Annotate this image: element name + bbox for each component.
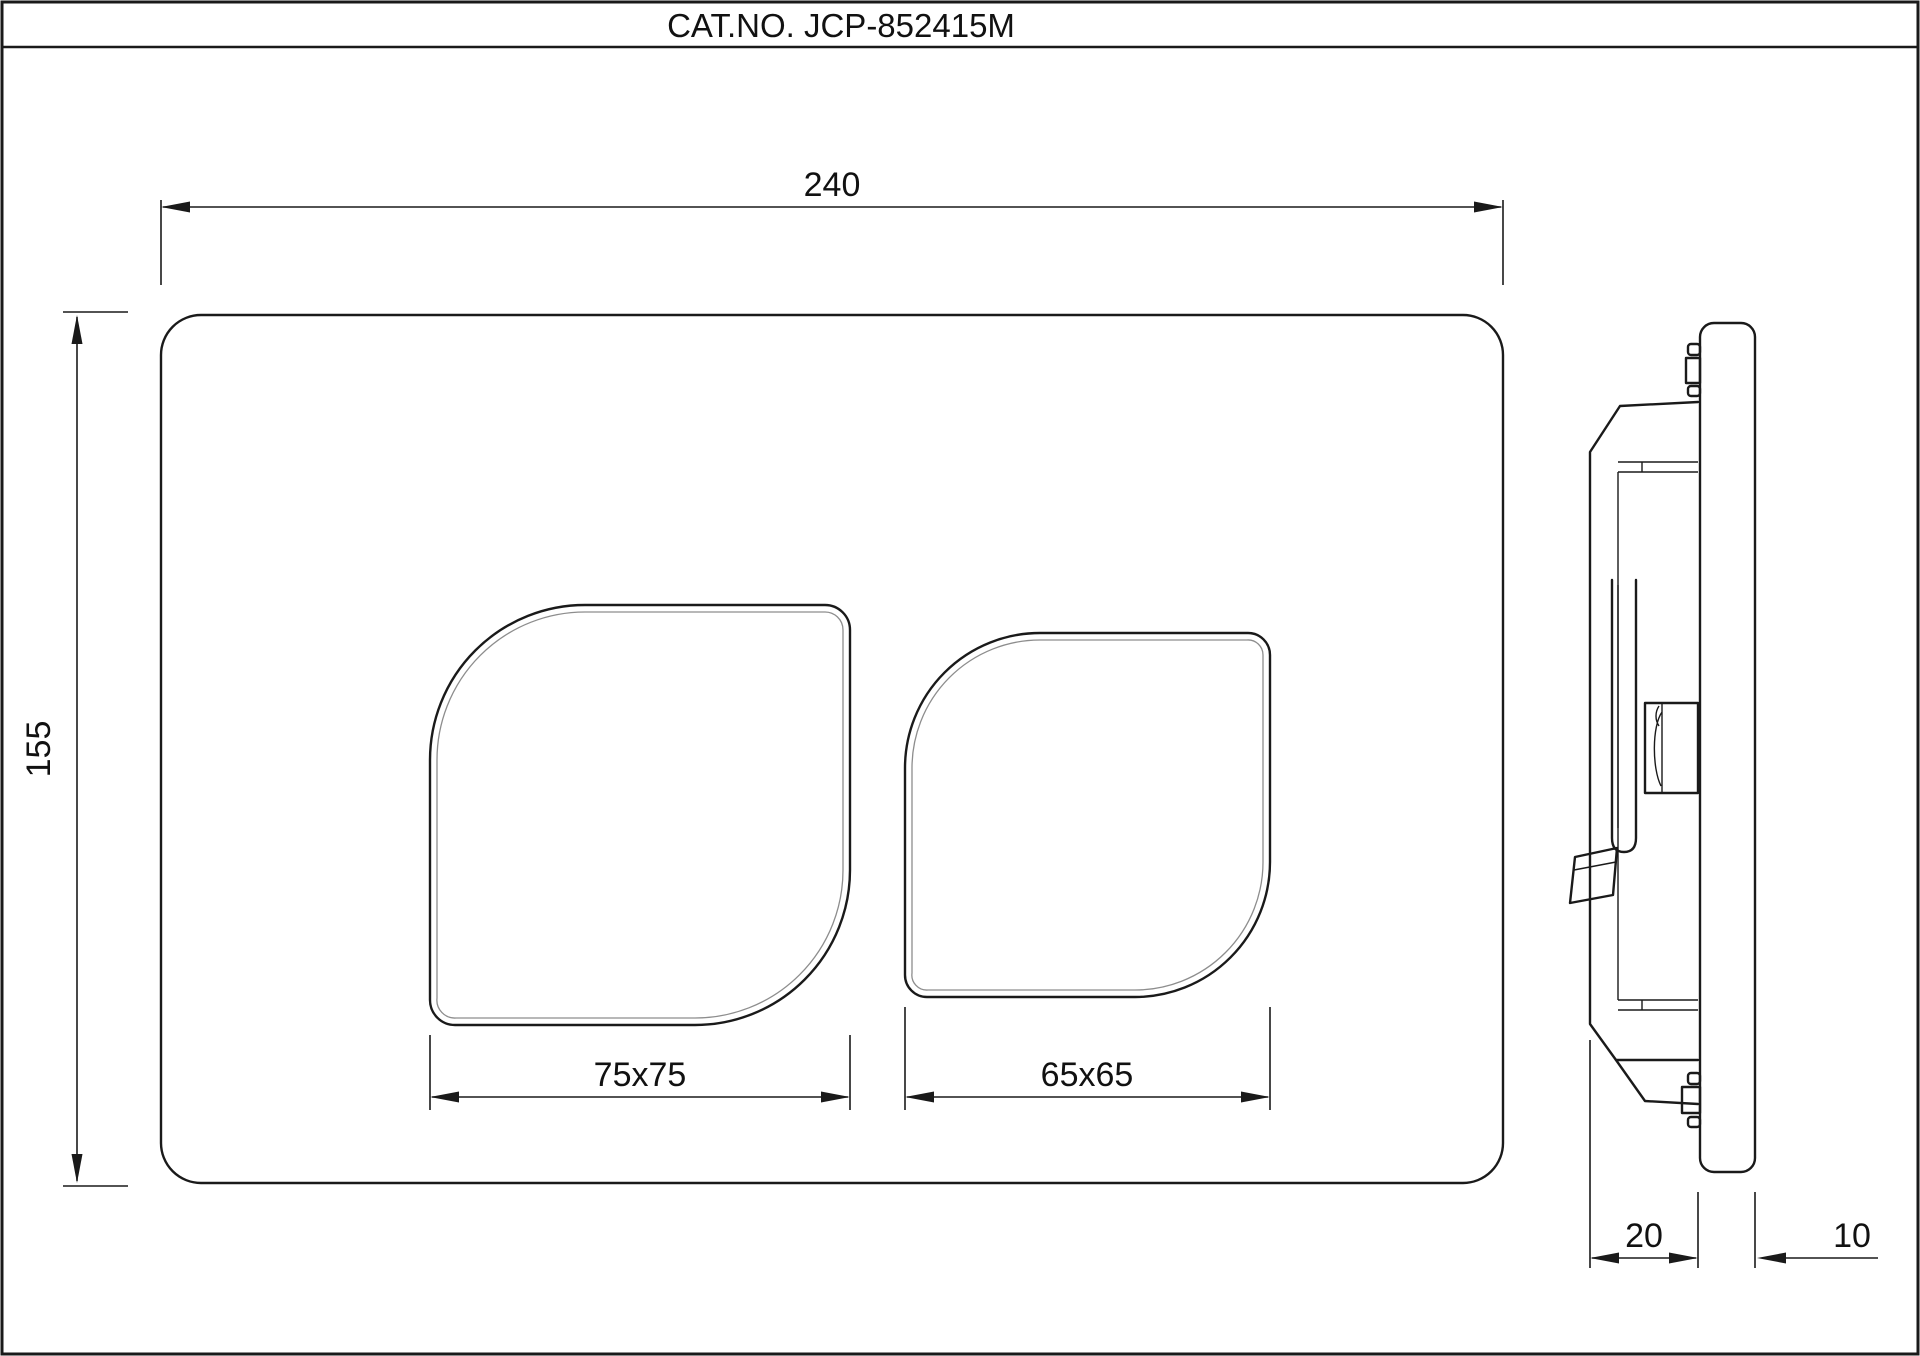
small-button-inner-edge: [912, 640, 1263, 990]
width-dimension-lines: [161, 200, 1503, 285]
arrow-left-icon: [905, 1092, 934, 1103]
small-button-outline: [905, 633, 1270, 997]
cover-plate-profile: [1700, 323, 1755, 1172]
clip-detail: [1688, 386, 1700, 396]
clip-detail: [1686, 358, 1700, 383]
drawing-sheet: CAT.NO. JCP-852415M 240: [0, 0, 1920, 1356]
arrow-left-icon: [1590, 1253, 1619, 1264]
large-button-dimension: 75x75: [430, 1035, 850, 1110]
width-dimension: 240: [161, 166, 1503, 285]
thickness-dimension-label: 10: [1833, 1217, 1871, 1255]
arrow-down-icon: [72, 1154, 83, 1183]
sheet-border: [2, 2, 1918, 1354]
mechanism-housing: [1645, 703, 1698, 793]
rod-outline: [1612, 580, 1636, 852]
small-button-dimension-label: 65x65: [1041, 1056, 1134, 1094]
large-button-inner-edge: [437, 612, 843, 1018]
technical-drawing: CAT.NO. JCP-852415M 240: [0, 0, 1920, 1356]
height-dimension-lines: [63, 312, 128, 1186]
height-dimension-label: 155: [20, 721, 58, 778]
small-flush-button: [905, 633, 1270, 997]
mounting-clip-bracket: [1570, 848, 1617, 903]
plate-thickness-dimension: 10: [1755, 1192, 1878, 1268]
clip-detail: [1682, 1087, 1700, 1113]
depth-dimension-label: 20: [1625, 1217, 1663, 1255]
clip-detail: [1688, 1073, 1700, 1084]
clip-bracket-outline: [1570, 848, 1617, 903]
clip-bracket-inner-line: [1574, 862, 1616, 870]
arrow-left-icon: [430, 1092, 459, 1103]
width-dimension-label: 240: [804, 166, 861, 204]
side-view: 20 10: [1570, 323, 1878, 1268]
arrow-right-icon: [821, 1092, 850, 1103]
plate-outline: [161, 315, 1503, 1183]
front-view: 240 155 75x75 65x65: [20, 166, 1503, 1186]
arrow-right-icon: [1669, 1253, 1698, 1264]
large-flush-button: [430, 605, 850, 1025]
frame-seam-lines: [1618, 462, 1698, 1010]
housing-outline: [1645, 703, 1698, 793]
catalog-number: CAT.NO. JCP-852415M: [667, 7, 1015, 44]
clip-detail: [1688, 1117, 1700, 1127]
arrow-left-icon: [1757, 1253, 1786, 1264]
small-button-dimension: 65x65: [905, 1007, 1270, 1110]
arrow-up-icon: [72, 315, 83, 344]
large-button-outline: [430, 605, 850, 1025]
housing-cam-detail: [1654, 703, 1662, 793]
frame-skirt: [1616, 1060, 1698, 1104]
arrow-left-icon: [161, 202, 190, 213]
large-button-dimension-label: 75x75: [594, 1056, 687, 1094]
bottom-fixing-clips: [1682, 1073, 1700, 1127]
frame-depth-dimension: 20: [1590, 1040, 1698, 1268]
clip-detail: [1688, 344, 1700, 355]
arrow-right-icon: [1474, 202, 1503, 213]
top-fixing-clips: [1686, 344, 1700, 396]
actuator-rod: [1612, 580, 1636, 852]
height-dimension: 155: [20, 312, 128, 1186]
arrow-right-icon: [1241, 1092, 1270, 1103]
